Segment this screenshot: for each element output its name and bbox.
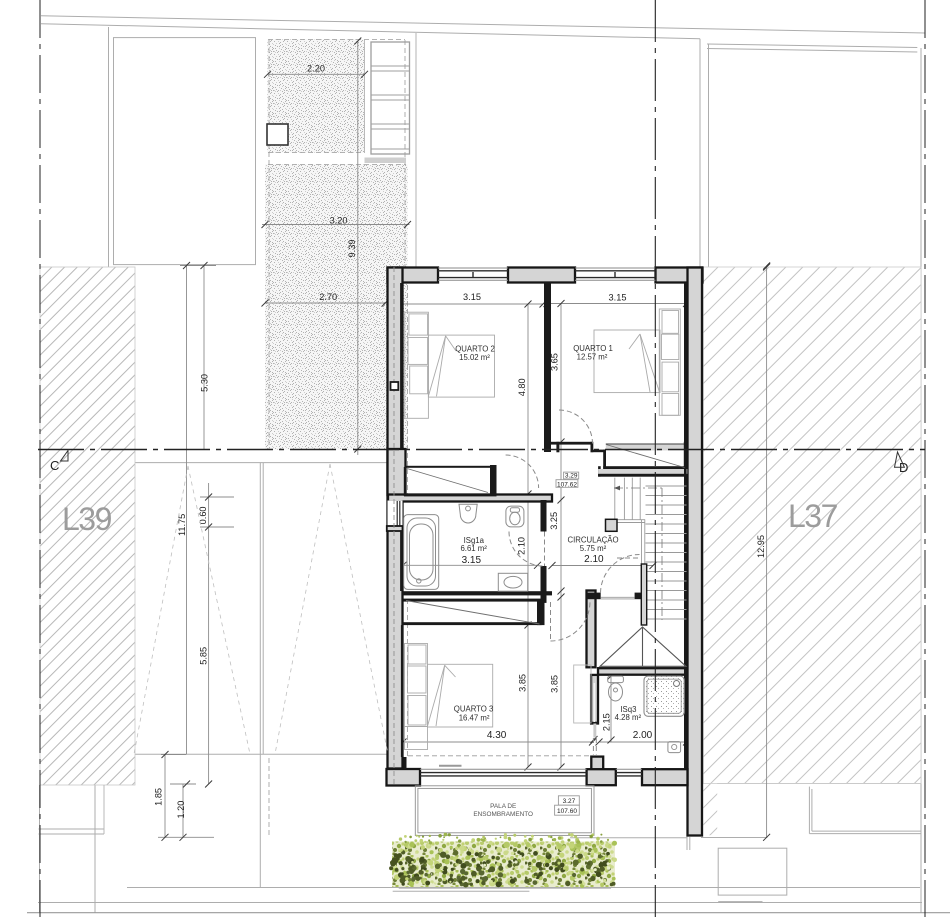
svg-text:QUARTO 2: QUARTO 2 [455,344,495,353]
svg-text:4.80: 4.80 [517,378,527,396]
svg-text:12.57 m²: 12.57 m² [577,352,608,361]
svg-text:3.25: 3.25 [549,512,559,530]
svg-text:5.75 m²: 5.75 m² [580,544,607,553]
svg-text:C: C [50,458,59,473]
svg-text:5.85: 5.85 [198,647,208,665]
svg-text:3.20: 3.20 [330,216,348,226]
svg-text:15.02 m²: 15.02 m² [459,353,490,362]
svg-text:5.30: 5.30 [199,374,209,392]
svg-text:L39: L39 [62,501,112,537]
svg-text:3.27: 3.27 [563,798,576,805]
svg-text:2.15: 2.15 [601,713,611,731]
svg-text:3.85: 3.85 [518,674,528,692]
svg-text:3.29: 3.29 [565,473,578,480]
svg-text:3.85: 3.85 [549,675,559,693]
svg-text:4.30: 4.30 [487,730,507,741]
svg-text:4.28 m²: 4.28 m² [615,713,642,722]
svg-text:L37: L37 [788,498,838,534]
svg-text:3.65: 3.65 [550,353,560,371]
svg-text:2.10: 2.10 [517,537,527,555]
svg-text:107.60: 107.60 [557,808,577,815]
svg-text:107.62: 107.62 [557,481,577,488]
svg-text:PALA DE: PALA DE [490,803,516,810]
svg-text:2.70: 2.70 [319,292,337,302]
svg-text:9.39: 9.39 [347,240,357,258]
svg-text:12.95: 12.95 [756,535,766,558]
svg-text:QUARTO 3: QUARTO 3 [454,704,494,713]
svg-text:2.00: 2.00 [633,730,653,741]
svg-text:2.20: 2.20 [307,63,325,73]
svg-text:3.15: 3.15 [463,292,481,302]
svg-text:3.15: 3.15 [609,292,627,302]
svg-text:16.47 m²: 16.47 m² [459,714,490,723]
svg-text:ENSOMBRAMENTO: ENSOMBRAMENTO [473,811,533,818]
svg-text:1.20: 1.20 [176,801,186,819]
svg-text:6.61 m²: 6.61 m² [460,544,487,553]
svg-text:3.15: 3.15 [462,555,482,566]
svg-text:1.85: 1.85 [154,788,164,806]
svg-text:2.10: 2.10 [584,554,604,565]
